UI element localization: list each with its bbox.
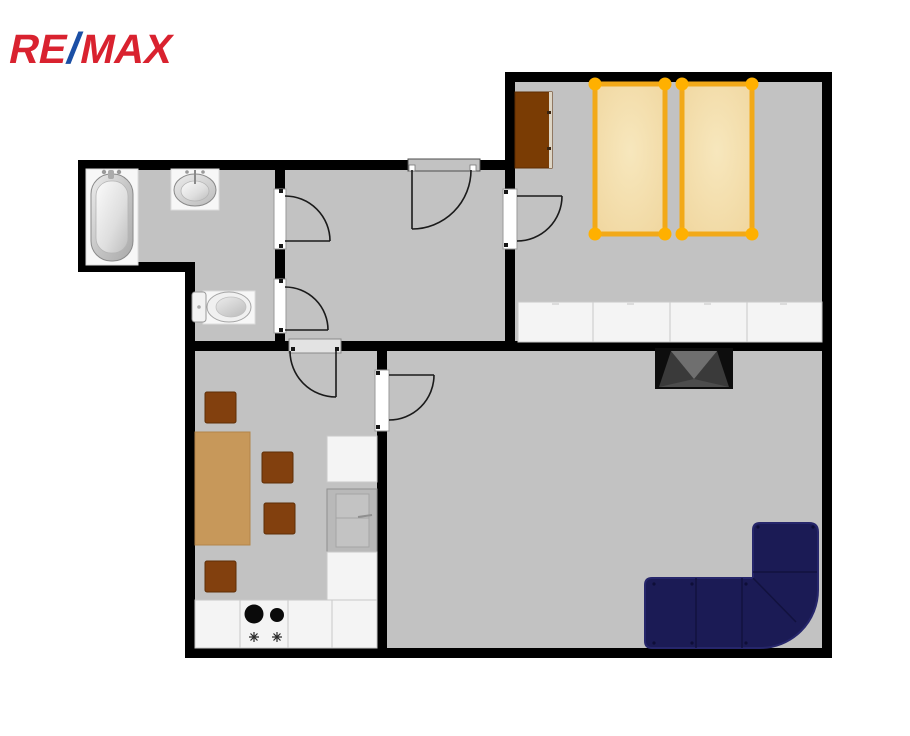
- chair: [262, 452, 293, 483]
- chair: [205, 561, 236, 592]
- wardrobe: [515, 92, 552, 168]
- wall-hall-left-b: [275, 248, 285, 280]
- sink: [171, 169, 219, 210]
- cabinet: [747, 302, 822, 342]
- counter-cabinet: [332, 600, 377, 648]
- wall-bedroom-left-upper: [505, 72, 515, 190]
- wc: [192, 291, 255, 324]
- floorplan-page: RE/MAX: [0, 0, 910, 736]
- hall-floor: [280, 165, 510, 346]
- wall-right: [822, 72, 832, 658]
- tv: [655, 348, 733, 389]
- kitchen-counter-bottom-row: [195, 600, 377, 648]
- chair: [205, 392, 236, 423]
- counter-cabinet: [327, 552, 377, 600]
- bathtub: [86, 169, 138, 265]
- toilet-flush-button: [197, 305, 201, 309]
- stove: [240, 600, 288, 648]
- wall-bedroom-left-lower: [505, 248, 515, 350]
- fridge: [327, 489, 377, 552]
- tub-tap-right: [117, 170, 121, 174]
- tub-faucet: [108, 170, 114, 179]
- counter-cabinet: [195, 600, 240, 648]
- bed-right: [676, 78, 759, 241]
- kitchen-counter-column: [327, 436, 377, 600]
- burner-symbol: [249, 632, 259, 642]
- tub-tap-left: [102, 170, 106, 174]
- floorplan: [0, 0, 910, 736]
- cabinet: [593, 302, 670, 342]
- cabinet: [518, 302, 593, 342]
- counter-cabinet: [327, 436, 377, 482]
- burner-large: [245, 605, 264, 624]
- wall-hall-left-a: [275, 160, 285, 190]
- counter-cabinet: [288, 600, 332, 648]
- chair: [264, 503, 295, 534]
- wall-bottom: [185, 648, 832, 658]
- burner-symbol: [272, 632, 282, 642]
- wall-middle-a: [185, 341, 290, 351]
- bed-left: [589, 78, 672, 241]
- bedroom-cabinet-row: [518, 302, 822, 342]
- burner-small: [270, 608, 284, 622]
- toilet: [192, 291, 255, 324]
- dining-table: [195, 432, 250, 545]
- cabinet: [670, 302, 747, 342]
- wall-kitchen-living-b: [377, 430, 387, 658]
- wall-kitchen-living-a: [377, 341, 387, 371]
